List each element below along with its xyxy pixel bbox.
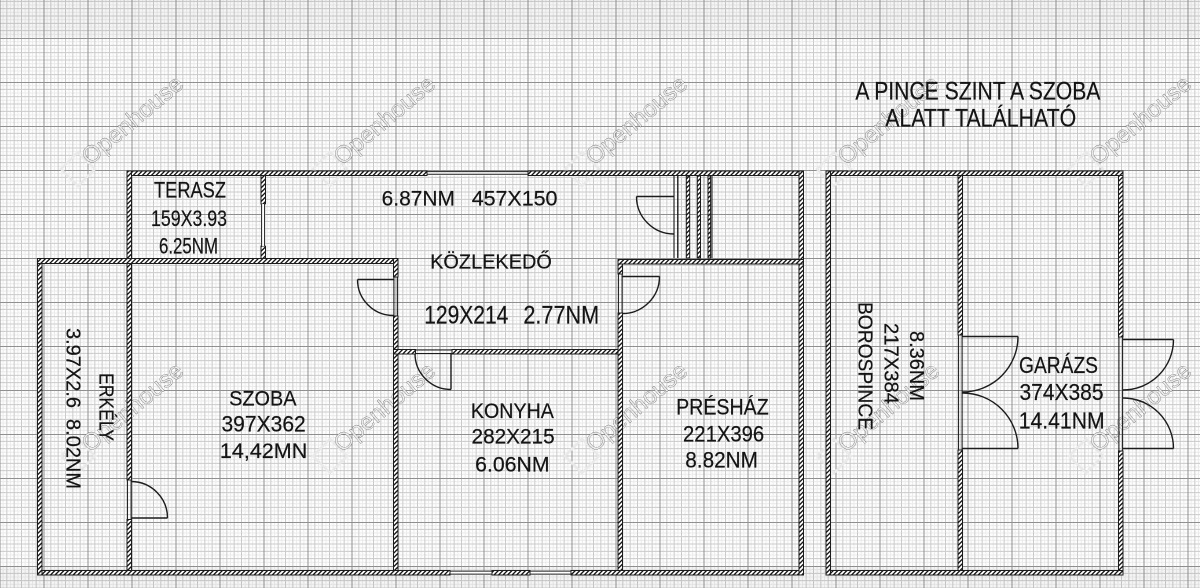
svg-text:GARÁZS: GARÁZS <box>1019 352 1098 378</box>
svg-text:129X214: 129X214 <box>424 301 508 329</box>
svg-text:3.97X2.6 8.02NM: 3.97X2.6 8.02NM <box>62 328 84 489</box>
svg-text:6.87NM: 6.87NM <box>382 186 455 211</box>
svg-text:14,42MN: 14,42MN <box>220 440 307 463</box>
svg-text:KÖZLEKEDŐ: KÖZLEKEDŐ <box>430 250 552 273</box>
svg-text:159X3.93: 159X3.93 <box>151 206 227 231</box>
svg-text:ERKÉLY: ERKÉLY <box>95 373 118 441</box>
svg-text:SZOBA: SZOBA <box>229 387 296 410</box>
svg-text:BOROSPINCE: BOROSPINCE <box>854 302 876 430</box>
svg-text:457X150: 457X150 <box>472 186 558 211</box>
svg-text:6.06NM: 6.06NM <box>475 454 549 477</box>
svg-text:KONYHA: KONYHA <box>471 400 554 423</box>
svg-text:8.82NM: 8.82NM <box>685 447 758 472</box>
svg-text:282X215: 282X215 <box>472 425 555 448</box>
svg-text:ALATT TALÁLHATÓ: ALATT TALÁLHATÓ <box>885 104 1076 133</box>
svg-text:14.41NM: 14.41NM <box>1019 408 1105 434</box>
svg-text:217X384: 217X384 <box>880 323 902 404</box>
svg-text:221X396: 221X396 <box>683 421 764 446</box>
svg-text:6.25NM: 6.25NM <box>159 234 218 259</box>
svg-text:TERASZ: TERASZ <box>154 178 226 203</box>
svg-text:PRÉSHÁZ: PRÉSHÁZ <box>676 395 769 420</box>
svg-text:397X362: 397X362 <box>221 411 305 436</box>
svg-text:A PINCE SZINT A SZOBA: A PINCE SZINT A SZOBA <box>855 78 1100 106</box>
svg-text:2.77NM: 2.77NM <box>523 301 599 329</box>
svg-text:8.36NM: 8.36NM <box>905 331 927 401</box>
svg-text:374X385: 374X385 <box>1020 379 1104 405</box>
